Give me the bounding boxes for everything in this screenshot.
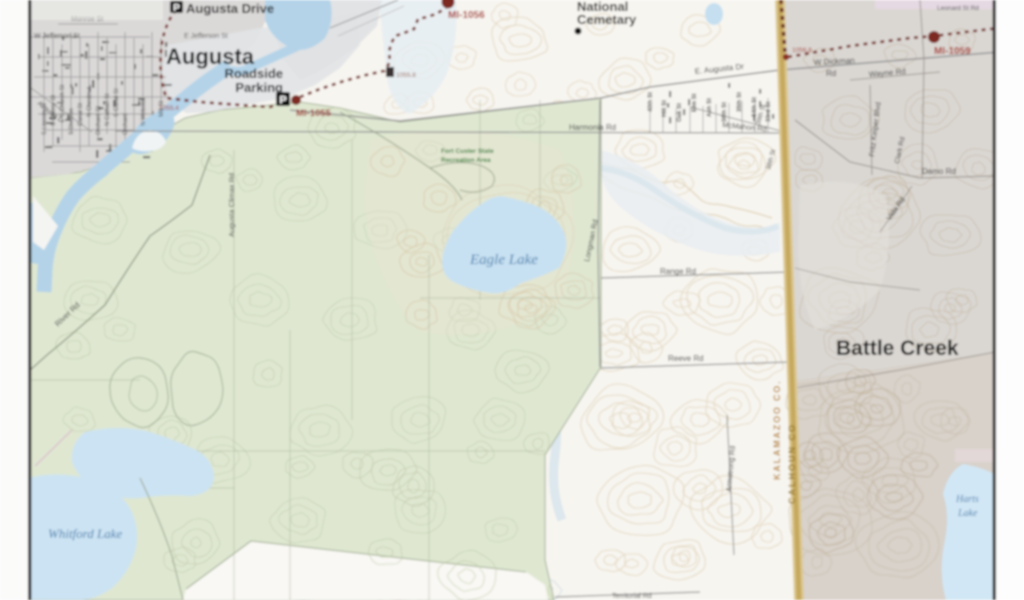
- svg-text:Harmonia Rd: Harmonia Rd: [569, 123, 616, 132]
- svg-text:33rd St: 33rd St: [766, 102, 772, 122]
- svg-text:1055.8: 1055.8: [396, 72, 416, 79]
- svg-text:KALAMAZOO CO.: KALAMAZOO CO.: [772, 380, 782, 480]
- svg-text:S Lincoln St: S Lincoln St: [42, 103, 48, 135]
- svg-text:Parking: Parking: [235, 80, 283, 95]
- svg-text:Orchard St: Orchard St: [96, 106, 102, 135]
- svg-text:Rd: Rd: [826, 69, 836, 78]
- svg-text:S Canal St: S Canal St: [114, 88, 120, 117]
- svg-text:Elm St: Elm St: [692, 93, 698, 112]
- svg-text:N Chestnut: N Chestnut: [87, 87, 93, 117]
- svg-text:Eagle Lake: Eagle Lake: [469, 252, 538, 268]
- svg-text:CALHOUN CO: CALHOUN CO: [787, 423, 797, 504]
- svg-text:P: P: [279, 95, 286, 107]
- svg-text:Mill St: Mill St: [159, 100, 165, 117]
- svg-text:Hill St: Hill St: [662, 100, 668, 117]
- svg-text:Ash St: Ash St: [707, 98, 713, 117]
- svg-text:40th St: 40th St: [648, 92, 654, 112]
- svg-text:S Division: S Division: [69, 108, 75, 135]
- svg-text:Fort Custer State: Fort Custer State: [441, 148, 494, 155]
- svg-text:Augusta Drive: Augusta Drive: [186, 1, 274, 16]
- svg-text:MI-1059: MI-1059: [934, 46, 971, 57]
- svg-text:P: P: [173, 3, 180, 14]
- svg-text:Augusta Climax Rd: Augusta Climax Rd: [227, 173, 236, 237]
- svg-text:Territorial Rd: Territorial Rd: [612, 593, 652, 600]
- svg-text:Lake: Lake: [957, 508, 978, 519]
- svg-text:Orchard: Orchard: [123, 113, 129, 135]
- svg-text:S Cherry St: S Cherry St: [51, 95, 57, 126]
- svg-text:Battle Creek: Battle Creek: [836, 337, 959, 360]
- svg-text:1056.8: 1056.8: [792, 47, 812, 54]
- svg-text:Damo Rd: Damo Rd: [922, 167, 956, 176]
- svg-text:Range Rd: Range Rd: [660, 267, 696, 276]
- svg-text:S Church St: S Church St: [60, 84, 66, 117]
- svg-text:Harts: Harts: [955, 494, 979, 505]
- svg-text:E Jefferson St: E Jefferson St: [184, 33, 228, 40]
- svg-text:Recreation Area: Recreation Area: [441, 157, 491, 164]
- svg-text:Oak St: Oak St: [677, 103, 683, 122]
- svg-text:Canal St: Canal St: [78, 103, 84, 126]
- svg-text:N Webster: N Webster: [141, 98, 147, 126]
- svg-text:Roadside: Roadside: [224, 66, 283, 81]
- svg-text:Leonard St Rd: Leonard St Rd: [937, 5, 979, 12]
- svg-text:MI-1056: MI-1056: [448, 10, 485, 21]
- svg-text:MI-1055: MI-1055: [296, 108, 332, 119]
- svg-text:36th St: 36th St: [722, 102, 728, 122]
- svg-text:Cemetary: Cemetary: [577, 12, 637, 27]
- svg-text:N Catharl St: N Catharl St: [105, 93, 111, 126]
- svg-text:Whitford Lake: Whitford Lake: [48, 526, 122, 541]
- svg-text:W Jefferson St: W Jefferson St: [34, 33, 80, 40]
- svg-text:Reeve Rd: Reeve Rd: [668, 354, 704, 363]
- svg-text:35th St: 35th St: [737, 92, 743, 112]
